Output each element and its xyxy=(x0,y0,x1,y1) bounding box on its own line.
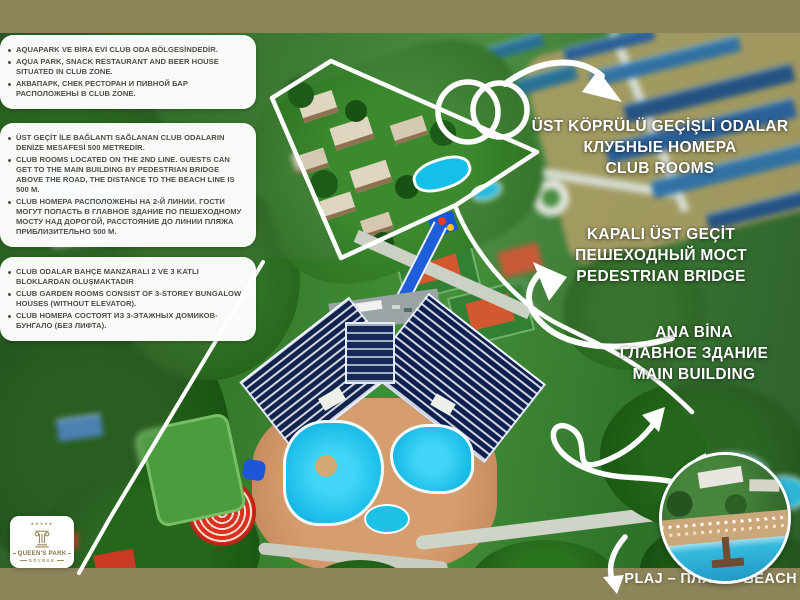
bullet-dot xyxy=(8,137,11,140)
bullet-item: CLUB ROOMS LOCATED ON THE 2ND LINE. GUES… xyxy=(8,155,247,195)
tree-blob xyxy=(288,82,314,108)
label-line: ПЕШЕХОДНЫЙ МОСТ xyxy=(541,245,781,266)
bullet-text: CLUB ROOMS LOCATED ON THE 2ND LINE. GUES… xyxy=(16,155,247,195)
tennis-court-clay xyxy=(497,242,543,278)
logo-location: GÖYNÜK xyxy=(29,558,56,563)
logo-location-row: GÖYNÜK xyxy=(20,558,65,563)
blue-tent xyxy=(241,458,266,482)
tree-blob xyxy=(430,120,456,146)
tree-blob xyxy=(310,170,338,198)
logo-stars: ★★★★★ xyxy=(31,522,54,526)
car xyxy=(404,308,412,312)
label-main-building: ANA BİNA ГЛАВНОЕ ЗДАНИЕ MAIN BUILDING xyxy=(588,322,800,385)
label-line: KAPALI ÜST GEÇİT xyxy=(541,224,781,245)
kids-pool xyxy=(364,504,410,534)
logo-rule xyxy=(68,553,71,554)
inset-hotel xyxy=(749,479,779,492)
bullet-item: ÜST GEÇİT İLE BAĞLANTI SAĞLANAN CLUB ODA… xyxy=(8,133,247,153)
label-line: ÜST KÖPRÜLÜ GEÇİŞLİ ODALAR xyxy=(520,116,800,137)
bullet-dot xyxy=(8,83,11,86)
pool-island xyxy=(315,455,337,477)
bullet-item: АКВАПАРК, СНЕК РЕСТОРАН И ПИВНОЙ БАР РАС… xyxy=(8,79,247,99)
logo-name: QUEEN'S PARK xyxy=(18,550,67,557)
bullet-dot xyxy=(8,271,11,274)
waterslide-detail xyxy=(447,224,454,231)
info-box-bungalows: CLUB ODALAR BAHÇE MANZARALI 2 VE 3 KATLI… xyxy=(0,257,256,341)
infographic-page: AQUAPARK VE BİRA EVİ CLUB ODA BÖLGESİNDE… xyxy=(0,0,800,600)
bullet-dot xyxy=(8,61,11,64)
main-building-tower xyxy=(345,322,395,384)
bullet-item: AQUA PARK, SNACK RESTAURANT AND BEER HOU… xyxy=(8,57,247,77)
bullet-text: АКВАПАРК, СНЕК РЕСТОРАН И ПИВНОЙ БАР РАС… xyxy=(16,79,247,99)
bullet-item: CLUB ODALAR BAHÇE MANZARALI 2 VE 3 KATLI… xyxy=(8,267,247,287)
logo-rule xyxy=(57,560,64,561)
label-pedestrian-bridge: KAPALI ÜST GEÇİT ПЕШЕХОДНЫЙ МОСТ PEDESTR… xyxy=(541,224,781,287)
label-line: PEDESTRIAN BRIDGE xyxy=(541,266,781,287)
bullet-text: AQUAPARK VE BİRA EVİ CLUB ODA BÖLGESİNDE… xyxy=(16,45,247,55)
beach-inset-scene xyxy=(659,452,791,584)
bullet-item: CLUB GARDEN ROOMS CONSIST OF 3-STOREY BU… xyxy=(8,289,247,309)
car xyxy=(392,305,400,309)
bullet-text: CLUB ODALAR BAHÇE MANZARALI 2 VE 3 KATLI… xyxy=(16,267,247,287)
logo-name-row: QUEEN'S PARK xyxy=(13,550,71,557)
tree-blob xyxy=(345,100,367,122)
column-icon xyxy=(31,527,53,549)
bullet-dot xyxy=(8,159,11,162)
bullet-text: AQUA PARK, SNACK RESTAURANT AND BEER HOU… xyxy=(16,57,247,77)
bullet-item: CLUB НОМЕРА СОСТОЯТ ИЗ 3-ЭТАЖНЫХ ДОМИКОВ… xyxy=(8,311,247,331)
bullet-dot xyxy=(8,293,11,296)
label-line: КЛУБНЫЕ НОМЕРА xyxy=(520,137,800,158)
bullet-text: CLUB НОМЕРА СОСТОЯТ ИЗ 3-ЭТАЖНЫХ ДОМИКОВ… xyxy=(16,311,247,331)
top-gold-bar xyxy=(0,0,800,33)
info-box-aquapark: AQUAPARK VE BİRA EVİ CLUB ODA BÖLGESİNDE… xyxy=(0,35,256,109)
beach-inset-photo xyxy=(659,452,791,584)
bullet-dot xyxy=(8,315,11,318)
logo-rule xyxy=(13,553,16,554)
bullet-dot xyxy=(8,49,11,52)
bullet-text: CLUB НОМЕРА РАСПОЛОЖЕНЫ НА 2-Й ЛИНИИ. ГО… xyxy=(16,197,247,237)
info-box-distance: ÜST GEÇİT İLE BAĞLANTI SAĞLANAN CLUB ODA… xyxy=(0,123,256,247)
label-line: ГЛАВНОЕ ЗДАНИЕ xyxy=(588,343,800,364)
bullet-dot xyxy=(8,201,11,204)
logo-rule xyxy=(20,560,27,561)
bullet-item: AQUAPARK VE BİRA EVİ CLUB ODA BÖLGESİNDE… xyxy=(8,45,247,55)
label-line: ANA BİNA xyxy=(588,322,800,343)
label-club-rooms: ÜST KÖPRÜLÜ GEÇİŞLİ ODALAR КЛУБНЫЕ НОМЕР… xyxy=(520,116,800,179)
bullet-item: CLUB НОМЕРА РАСПОЛОЖЕНЫ НА 2-Й ЛИНИИ. ГО… xyxy=(8,197,247,237)
logo-queens-park: ★★★★★ QUEEN'S PARK GÖYNÜK xyxy=(10,516,74,568)
label-line: MAIN BUILDING xyxy=(588,364,800,385)
roundabout-center xyxy=(542,189,560,207)
label-line: CLUB ROOMS xyxy=(520,158,800,179)
bullet-text: ÜST GEÇİT İLE BAĞLANTI SAĞLANAN CLUB ODA… xyxy=(16,133,247,153)
bullet-text: CLUB GARDEN ROOMS CONSIST OF 3-STOREY BU… xyxy=(16,289,247,309)
